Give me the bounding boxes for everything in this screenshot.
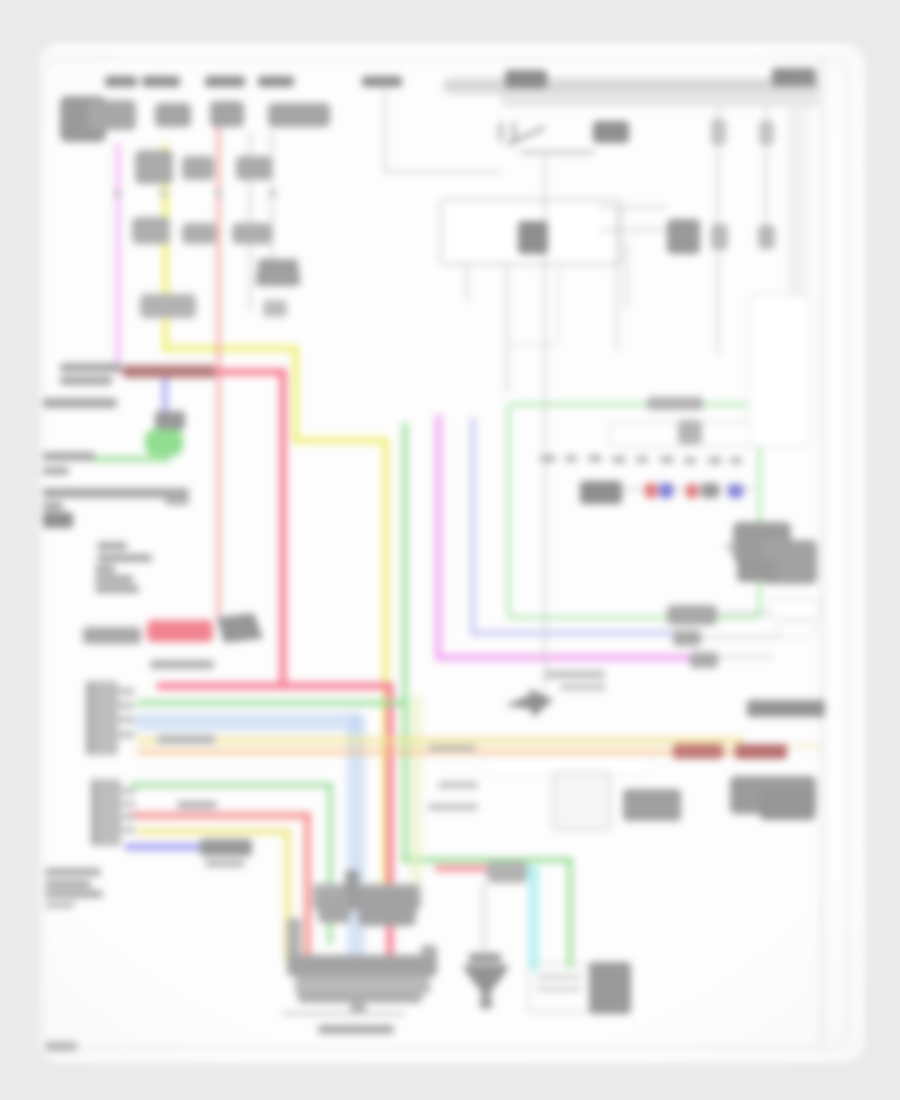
mid-text-dash-1 bbox=[545, 671, 605, 678]
component1-label bbox=[150, 660, 214, 669]
ground-bar bbox=[469, 953, 501, 963]
pin-block-gray bbox=[580, 481, 622, 504]
fuse-glyph-4 bbox=[268, 103, 330, 127]
legend-line-4 bbox=[95, 575, 133, 583]
component2-body bbox=[93, 779, 121, 846]
wire-violet-mid-seg2 bbox=[470, 630, 676, 636]
bottom-comp-blob-a bbox=[318, 893, 350, 923]
left-text-line-4 bbox=[43, 452, 95, 461]
bottom-comp-mid bbox=[295, 976, 430, 994]
connector-r2-b bbox=[182, 223, 216, 244]
pin-red-1 bbox=[645, 483, 657, 498]
greenbox-dash-1 bbox=[540, 455, 556, 462]
connector-r2-a bbox=[132, 217, 170, 244]
bottom-comp-body bbox=[287, 955, 437, 976]
wire-magenta-fuse-drop bbox=[115, 142, 121, 375]
bottomleft-text-4 bbox=[45, 902, 75, 908]
gray-line-mid-vertical-seg3 bbox=[599, 229, 666, 231]
wire-green-long-seg1 bbox=[402, 422, 408, 863]
component2-pin-3 bbox=[121, 814, 136, 820]
wire-label-dark-red bbox=[123, 365, 215, 378]
connector-trapezoid bbox=[255, 259, 301, 286]
left-text-line-7 bbox=[43, 502, 63, 510]
wire-pale-bundle-vertical bbox=[410, 694, 422, 884]
wire-yellow-right-long bbox=[137, 737, 744, 744]
wire-yellow-main-seg4 bbox=[292, 437, 389, 444]
legend-line-3 bbox=[95, 565, 115, 573]
bundle-text-dash-1 bbox=[428, 745, 476, 751]
component2-edge bbox=[91, 779, 96, 846]
legend-line-2 bbox=[97, 554, 152, 562]
blurred-diagram-layer bbox=[0, 0, 900, 1100]
gray-line-relay-pin1 bbox=[506, 261, 508, 394]
fuse-label-4 bbox=[258, 76, 294, 87]
greenbox-top-gray-patch bbox=[647, 397, 703, 410]
gray-line-top-label-drop-seg2 bbox=[384, 171, 501, 173]
wire-red-lower-seg1 bbox=[127, 812, 311, 819]
gray-line-green-end bbox=[716, 612, 771, 614]
right-connector-dark bbox=[667, 219, 700, 254]
wire-red-main-seg2 bbox=[279, 368, 287, 690]
right-dark-text-row bbox=[747, 700, 825, 717]
midleft-trapezoid bbox=[217, 613, 263, 643]
left-text-line-2 bbox=[60, 376, 112, 385]
relay-comp-outline-fill bbox=[553, 772, 611, 830]
wire-red-bottom-right-stub bbox=[434, 865, 491, 872]
tall-white-box-right bbox=[748, 294, 810, 448]
junction-dot-4 bbox=[269, 190, 276, 197]
wire-cyan-seg2 bbox=[528, 865, 539, 971]
wiring-diagram-screenshot bbox=[0, 0, 900, 1100]
left-text-line-6b bbox=[165, 497, 189, 505]
pin-blue-2 bbox=[728, 484, 743, 498]
greenbox-dash-8 bbox=[708, 457, 722, 464]
greenbox-dash-7 bbox=[684, 457, 696, 464]
wire-magenta-mid-seg2 bbox=[435, 654, 694, 661]
wire-green-long-seg2 bbox=[137, 700, 408, 706]
fuse-glyph-3 bbox=[210, 101, 244, 127]
wire-yellow-main-seg2 bbox=[162, 345, 299, 352]
component2-pin-2 bbox=[121, 801, 136, 807]
wire-green-left-short bbox=[92, 456, 171, 462]
greenbox-dash-5 bbox=[636, 456, 648, 463]
right-component-stub bbox=[725, 545, 739, 549]
white-label-box-b bbox=[779, 621, 813, 637]
wire-violet-mid-seg1 bbox=[470, 417, 476, 636]
bus-tick-1 bbox=[711, 119, 726, 145]
gray-line-violet-end bbox=[700, 636, 781, 638]
connector-small-b bbox=[263, 300, 287, 317]
legend-line-5 bbox=[95, 585, 139, 593]
relay-coil-dark bbox=[518, 221, 548, 254]
wire-blue-lower-stub bbox=[124, 843, 202, 851]
ground-foot bbox=[480, 995, 492, 1009]
component1-edge bbox=[86, 681, 92, 755]
relay-sub-box bbox=[507, 263, 559, 345]
connector-r1-c bbox=[236, 156, 272, 180]
wire-lightblue-wide-seg1 bbox=[134, 713, 365, 731]
wire-green-long-seg4 bbox=[567, 857, 573, 968]
gray-line-top-label-drop-seg1 bbox=[384, 89, 386, 173]
connector-r1-b bbox=[182, 156, 214, 180]
bus-tick-3 bbox=[711, 224, 728, 250]
gray-line-relay-pin2 bbox=[466, 261, 468, 301]
gray-line-ground-drop bbox=[483, 883, 485, 956]
component2-pin-1 bbox=[121, 788, 136, 794]
wire-yellow-lower-seg1 bbox=[137, 828, 291, 835]
bottom-comp-base bbox=[298, 993, 422, 1003]
connector-r2-c bbox=[232, 223, 272, 244]
fuse-label-2 bbox=[142, 76, 180, 87]
junction-dot-2 bbox=[160, 190, 167, 197]
bottom-right-box-line-2 bbox=[536, 987, 582, 991]
bundle-text-b bbox=[177, 801, 217, 809]
greenbox-dash-2 bbox=[565, 455, 577, 462]
component1-pin-1 bbox=[118, 688, 135, 695]
bottom-right-box-line-1 bbox=[536, 975, 582, 979]
bottom-comp-wing-left bbox=[287, 918, 301, 960]
connector-small-a bbox=[140, 294, 196, 318]
midleft-text-row bbox=[83, 627, 141, 644]
relay-comp-dark-a bbox=[623, 789, 681, 821]
blue-stub-end-label bbox=[200, 839, 252, 856]
bottomleft-text-1 bbox=[45, 868, 101, 876]
fuse-glyph-2 bbox=[155, 103, 191, 127]
greenbox-dash-4 bbox=[612, 456, 626, 463]
connector-r1-a bbox=[135, 150, 173, 184]
switch-label bbox=[593, 121, 629, 143]
wire-magenta-mid-seg1 bbox=[435, 414, 442, 661]
bottom-right-dark-box bbox=[589, 962, 631, 1014]
bus-bar-top bbox=[443, 78, 820, 94]
greenbox-dash-9 bbox=[730, 457, 742, 464]
component1-body bbox=[88, 681, 118, 755]
blueviolet-end-blob bbox=[155, 411, 185, 430]
component1-pin-2 bbox=[118, 702, 135, 709]
fuse-label-1 bbox=[105, 76, 137, 87]
magenta-end-connector bbox=[690, 652, 718, 668]
switch-prong-1 bbox=[499, 122, 503, 142]
right-component-dark-c bbox=[737, 560, 777, 582]
greenbox-dash-6 bbox=[660, 456, 674, 463]
bundle-text-a bbox=[157, 735, 215, 744]
green-end-connector bbox=[667, 605, 717, 625]
left-text-line-1 bbox=[60, 363, 122, 372]
left-bold-note bbox=[43, 512, 73, 528]
gray-line-relay-pin3 bbox=[626, 242, 628, 308]
bottom-comp-blob-b bbox=[358, 888, 416, 926]
red-connector-label bbox=[147, 620, 213, 642]
wire-green-lower-seg1 bbox=[130, 782, 333, 788]
component1-pin-3 bbox=[118, 716, 135, 723]
mid-text-dash-2 bbox=[560, 684, 606, 690]
wire-red-main-seg3 bbox=[156, 682, 394, 690]
greenbox-corner-bits bbox=[678, 420, 702, 444]
component2-pin-4 bbox=[121, 827, 136, 833]
gray-line-channel-a bbox=[789, 93, 791, 296]
wire-red-lower-seg2 bbox=[304, 812, 311, 962]
left-text-line-5 bbox=[43, 467, 69, 475]
gray-line-mid-vertical-seg2 bbox=[599, 206, 666, 208]
legend-line-1 bbox=[97, 542, 127, 550]
violet-end-connector bbox=[673, 630, 701, 646]
pin-red-2 bbox=[686, 484, 698, 498]
junction-dot-1 bbox=[114, 190, 121, 197]
ground-tri-1 bbox=[462, 965, 510, 981]
bottomleft-text-3 bbox=[45, 890, 103, 898]
bus-label-right bbox=[772, 68, 816, 86]
bundle-text-dash-2 bbox=[438, 782, 478, 788]
gray-line-magenta-end bbox=[717, 656, 773, 658]
white-label-box-a bbox=[770, 599, 820, 619]
page-footer-text bbox=[45, 1042, 77, 1051]
orange-wire-label-a bbox=[673, 744, 723, 759]
pin-blue-1 bbox=[659, 483, 673, 498]
bus-bar-echo bbox=[500, 93, 820, 107]
junction-dot-3 bbox=[215, 190, 222, 197]
bus-label-left bbox=[505, 70, 547, 88]
component1-pin-4 bbox=[118, 731, 135, 738]
diagram-scene bbox=[0, 0, 900, 1100]
ground-tri-2 bbox=[473, 981, 499, 995]
left-text-line-3 bbox=[43, 398, 117, 408]
relay-comp-dark-c bbox=[760, 790, 815, 820]
greenbox-dash-3 bbox=[588, 455, 602, 462]
bundle-text-dash-3 bbox=[428, 804, 478, 810]
orange-wire-label-b bbox=[735, 744, 787, 759]
bus-tick-4 bbox=[758, 225, 775, 249]
gray-line-right-edge bbox=[821, 59, 823, 1045]
wire-yellow-main-seg3 bbox=[292, 345, 299, 444]
fuse-glyph-1 bbox=[88, 100, 136, 130]
bus-tick-2 bbox=[759, 121, 774, 145]
switch-wire bbox=[520, 151, 595, 154]
bottomleft-text-2 bbox=[45, 880, 91, 888]
fuse-label-3 bbox=[205, 76, 245, 87]
gray-line-channel-b bbox=[805, 93, 807, 296]
gray-line-bus-drop3 bbox=[796, 93, 798, 294]
arrow-to-glyph bbox=[505, 688, 553, 717]
bottom-comp-foot bbox=[350, 1003, 366, 1012]
blue-stub-sub-label bbox=[205, 860, 245, 867]
ground-connector bbox=[487, 861, 527, 883]
gray-line-under-bottom-component bbox=[282, 1012, 405, 1015]
bottom-comp-label bbox=[318, 1025, 394, 1034]
green-round-blob bbox=[145, 429, 183, 456]
fuse-label-5 bbox=[362, 76, 402, 87]
pin-gray bbox=[701, 483, 719, 498]
